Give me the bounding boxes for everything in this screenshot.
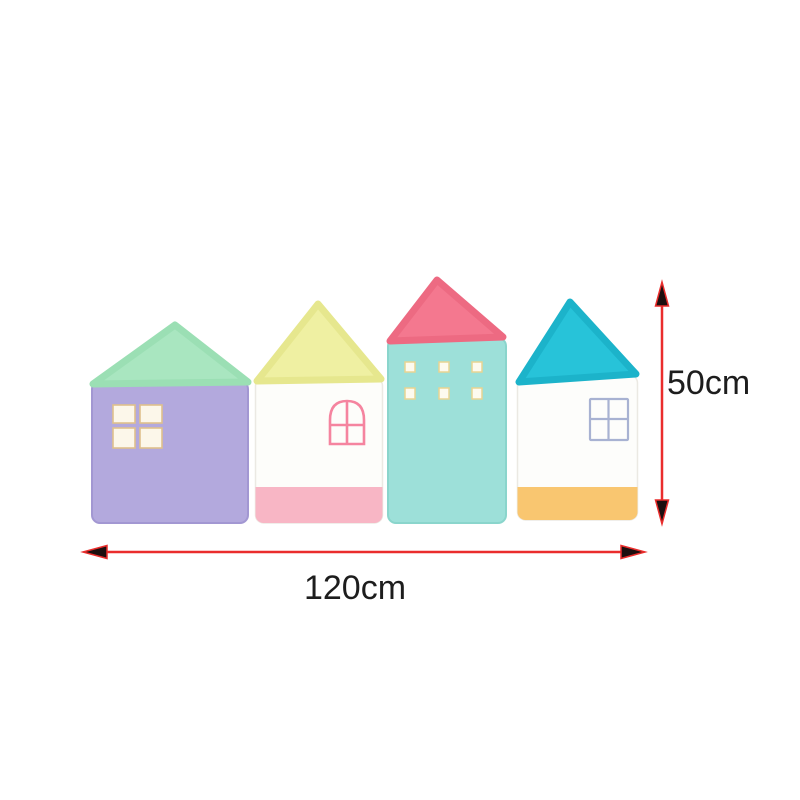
house-cyan-roof [518,302,638,520]
window-square [439,362,449,372]
product-dimension-image: 50cm 120cm [0,0,800,800]
width-dimension: 120cm [83,546,645,608]
window-pane [140,405,162,423]
window-square [439,388,449,399]
house-yellow-roof-base-top [256,487,383,501]
house-cyan-roof-base-top [518,487,638,499]
house-lavender-body [92,381,248,523]
house-lavender-roof [93,325,248,384]
height-dimension-label: 50cm [667,364,750,402]
house-teal-roof [390,280,503,341]
arrow-left-icon [83,546,107,559]
window-pane [113,428,135,448]
house-teal [388,280,506,523]
width-dimension-label: 120cm [304,569,406,607]
scene: 50cm 120cm [0,0,800,800]
window-square [472,388,482,399]
house-cyan-roof-roof [519,302,636,382]
window-square [405,388,415,399]
house-yellow-roof-roof [257,304,381,381]
house-yellow-roof [256,304,383,523]
window-square [472,362,482,372]
arrow-down-icon [656,500,669,524]
arrow-right-icon [621,546,645,559]
height-dimension: 50cm [656,282,751,524]
window-pane [140,428,162,448]
window-square [405,362,415,372]
arrow-up-icon [656,282,669,306]
house-lavender [92,325,248,523]
window-pane [113,405,135,423]
